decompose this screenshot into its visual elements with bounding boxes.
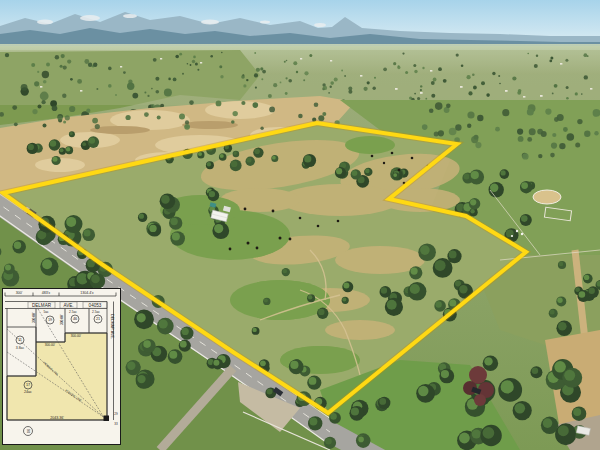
parcel-acreage: 2.5ac — [69, 310, 77, 314]
plat-top-dim: 483'± — [42, 291, 51, 295]
dimension-label: 300.00' — [60, 314, 64, 325]
street-name-label: DELMAR — [32, 303, 52, 308]
parcel-number: 17 — [26, 383, 30, 387]
section-marker: 06 — [24, 427, 33, 436]
corner-tick: 33 — [114, 422, 118, 426]
parcel-number: 46 — [73, 317, 77, 321]
aerial-property-photo: 300' 483'± 1304.4'± DELMAR AVE. 04053 DE… — [0, 0, 600, 450]
parcel-acreage: 5ac — [43, 310, 49, 314]
plat-map-inset: 300' 483'± 1304.4'± DELMAR AVE. 04053 DE… — [2, 288, 121, 445]
corner-monument — [104, 416, 110, 422]
plat-map-number: 04053 — [89, 303, 102, 308]
parcel-number: 19 — [48, 318, 52, 322]
bottom-dimension: 2043.36' — [50, 416, 64, 420]
dimension-label: 300.00' — [32, 312, 36, 323]
parcel-acreage: 24ac — [24, 390, 32, 394]
plat-top-dim: 1304.4'± — [80, 291, 94, 295]
plat-top-dim: 300' — [16, 291, 23, 295]
parcel-number: 21 — [96, 317, 100, 321]
dimension-label: 300.00' — [45, 343, 56, 347]
plat-map-drawing: 300' 483'± 1304.4'± DELMAR AVE. 04053 DE… — [3, 289, 120, 444]
svg-text:06: 06 — [26, 428, 31, 433]
corner-tick: 29 — [114, 412, 118, 416]
street-name-vertical-label: DELMAR AVE. — [110, 314, 114, 339]
dimension-label: 300.00' — [71, 334, 82, 338]
parcel-acreage: 3.8ac — [16, 346, 25, 350]
parcel-number: 11 — [18, 338, 22, 342]
parcel-acreage: 2.5ac — [92, 310, 100, 314]
street-ave-label: AVE. — [63, 303, 73, 308]
